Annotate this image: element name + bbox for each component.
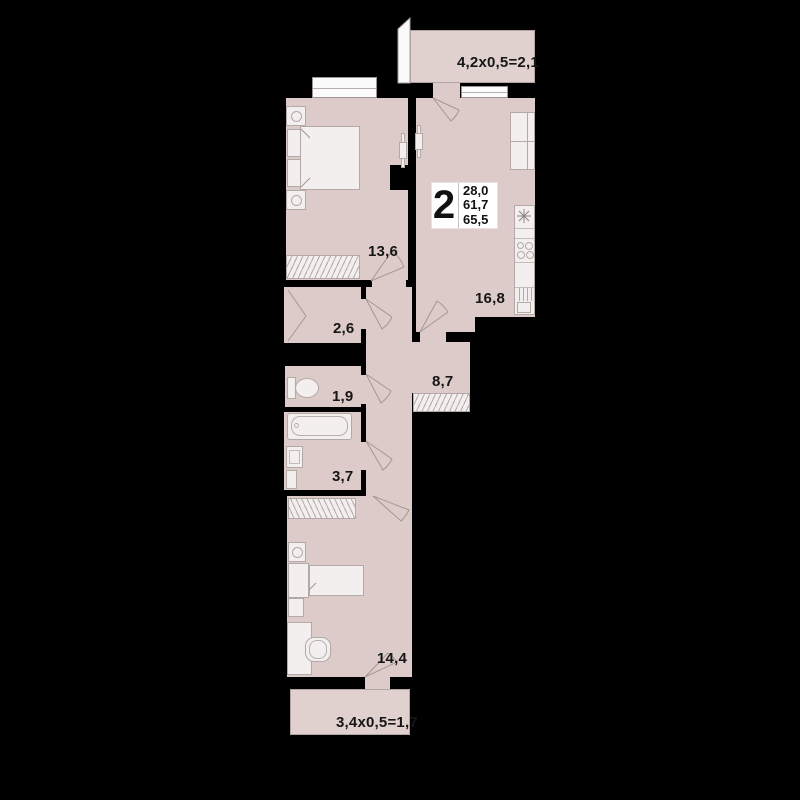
area-living: 28,0	[463, 184, 488, 199]
bathroom-area-label: 3,7	[332, 468, 353, 485]
bedroom2-area-label: 14,4	[377, 650, 407, 667]
area-total: 65,5	[463, 213, 488, 228]
balcony-top-label: 4,2x0,5=2,1	[457, 54, 539, 71]
kitchen-area-label: 16,8	[475, 290, 505, 307]
closet-area-label: 2,6	[333, 320, 354, 337]
vent-star-icon	[517, 209, 531, 223]
floor-plan: 2 28,0 61,7 65,5 13,6 16,8 2,6 1,9 8,7 3…	[0, 0, 800, 800]
rooms-count: 2	[432, 183, 456, 228]
bedroom-area-label: 13,6	[368, 243, 398, 260]
hallway-area-label: 8,7	[432, 373, 453, 390]
door-arcs-overlay	[0, 0, 800, 800]
apartment-type-badge: 2 28,0 61,7 65,5	[432, 183, 497, 228]
wc-area-label: 1,9	[332, 388, 353, 405]
balcony-bottom-label: 3,4x0,5=1,7	[336, 714, 418, 731]
area-usable: 61,7	[463, 198, 488, 213]
